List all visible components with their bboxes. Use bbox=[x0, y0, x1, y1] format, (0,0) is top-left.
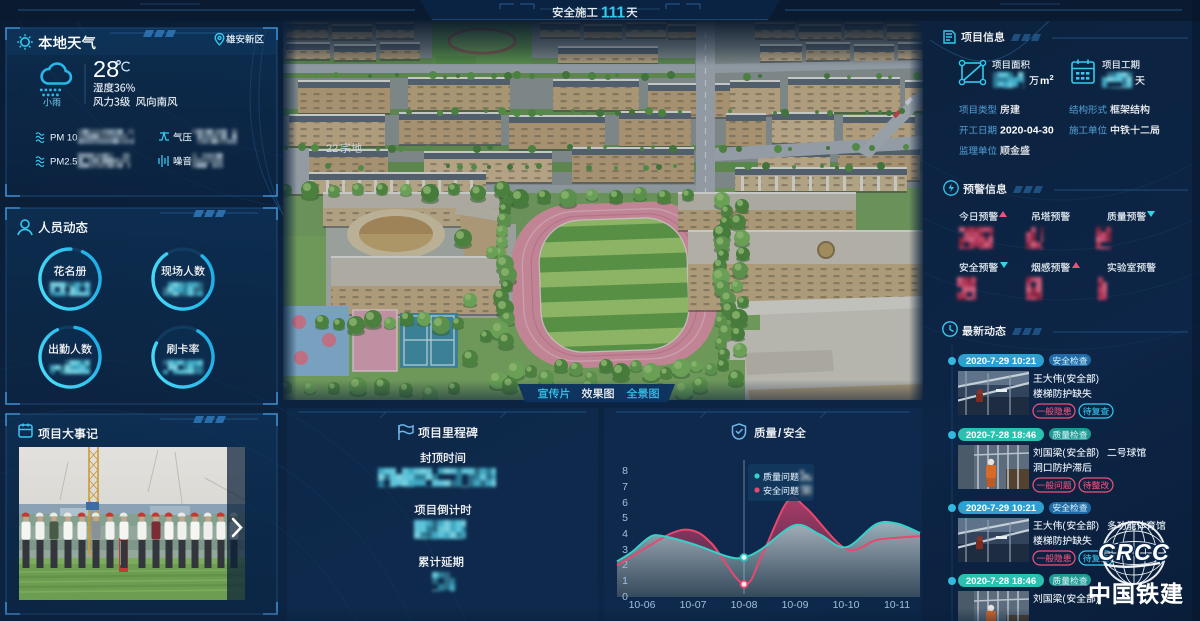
svg-text:): ) bbox=[1096, 374, 1099, 385]
svg-text:0: 0 bbox=[622, 591, 628, 603]
svg-text:): ) bbox=[1096, 521, 1099, 532]
svg-text:): ) bbox=[1096, 448, 1099, 459]
svg-text:111: 111 bbox=[601, 5, 626, 22]
svg-text:1: 1 bbox=[622, 575, 628, 587]
svg-text:2020-7-28 18:46: 2020-7-28 18:46 bbox=[966, 430, 1036, 441]
svg-text:7: 7 bbox=[622, 481, 628, 493]
svg-text:4: 4 bbox=[622, 528, 628, 540]
svg-text:CRCC: CRCC bbox=[1098, 539, 1170, 565]
svg-text:m: m bbox=[1040, 75, 1049, 87]
svg-text:2020-7-29 10:21: 2020-7-29 10:21 bbox=[966, 503, 1037, 514]
svg-text:8: 8 bbox=[622, 465, 628, 477]
svg-text:2020-7-29 10:21: 2020-7-29 10:21 bbox=[966, 356, 1037, 367]
svg-text:6: 6 bbox=[622, 497, 628, 509]
svg-text:2: 2 bbox=[1050, 73, 1054, 82]
svg-text:28: 28 bbox=[93, 56, 119, 82]
svg-text:PM2.5: PM2.5 bbox=[50, 157, 77, 168]
svg-text:5: 5 bbox=[622, 512, 628, 524]
svg-text:PM 10: PM 10 bbox=[50, 133, 77, 144]
svg-text:2020-04-30: 2020-04-30 bbox=[1000, 125, 1054, 137]
svg-text:2020-7-28 18:46: 2020-7-28 18:46 bbox=[966, 576, 1036, 587]
